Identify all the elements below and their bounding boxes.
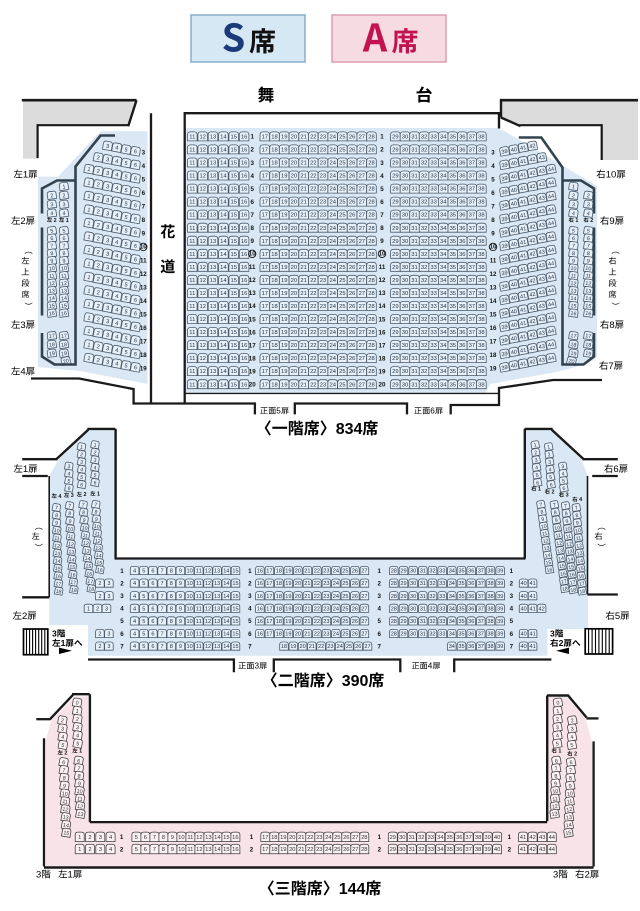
svg-text:36: 36 — [468, 606, 474, 612]
svg-text:20: 20 — [291, 135, 297, 141]
svg-text:7: 7 — [510, 643, 514, 650]
svg-text:11: 11 — [196, 632, 202, 638]
svg-text:5: 5 — [142, 619, 145, 625]
svg-text:27: 27 — [359, 252, 365, 258]
svg-text:5: 5 — [510, 618, 514, 625]
svg-text:22: 22 — [307, 847, 313, 853]
svg-text:6: 6 — [613, 464, 618, 475]
svg-text:44: 44 — [548, 247, 555, 254]
svg-text:1: 1 — [248, 568, 252, 575]
svg-text:21: 21 — [300, 174, 306, 180]
svg-text:21: 21 — [304, 606, 310, 612]
svg-text:40: 40 — [520, 594, 526, 600]
svg-text:36: 36 — [459, 213, 465, 219]
svg-text:18: 18 — [88, 586, 95, 593]
svg-text:17: 17 — [262, 213, 268, 219]
svg-text:8: 8 — [170, 594, 173, 600]
svg-text:4: 4 — [142, 163, 146, 170]
svg-text:33: 33 — [430, 343, 436, 349]
svg-text:13: 13 — [210, 226, 216, 232]
svg-text:25: 25 — [342, 594, 348, 600]
svg-text:30: 30 — [402, 187, 408, 193]
svg-text:7: 7 — [380, 212, 384, 219]
svg-text:18: 18 — [140, 352, 147, 359]
svg-text:15: 15 — [230, 317, 236, 323]
svg-text:15: 15 — [232, 581, 238, 587]
svg-text:24: 24 — [329, 356, 336, 362]
svg-text:36: 36 — [456, 835, 462, 841]
svg-text:36: 36 — [459, 239, 465, 245]
svg-text:19: 19 — [281, 369, 287, 375]
svg-text:27: 27 — [359, 304, 365, 310]
svg-text:39: 39 — [497, 606, 503, 612]
svg-text:25: 25 — [342, 581, 348, 587]
svg-text:19: 19 — [281, 265, 287, 271]
svg-text:2: 2 — [248, 580, 252, 587]
svg-text:11: 11 — [189, 135, 195, 141]
svg-text:10: 10 — [186, 606, 192, 612]
svg-text:16: 16 — [241, 369, 247, 375]
svg-text:7: 7 — [377, 643, 381, 650]
svg-text:14: 14 — [379, 303, 386, 310]
svg-text:7: 7 — [161, 619, 164, 625]
svg-text:37: 37 — [469, 343, 475, 349]
svg-text:41: 41 — [520, 348, 527, 355]
svg-text:13: 13 — [210, 174, 216, 180]
svg-text:15: 15 — [232, 606, 238, 612]
svg-text:27: 27 — [359, 187, 365, 193]
svg-text:12: 12 — [199, 174, 205, 180]
svg-text:36: 36 — [459, 356, 465, 362]
svg-text:13: 13 — [490, 285, 497, 292]
svg-text:23: 23 — [316, 847, 322, 853]
svg-text:16: 16 — [257, 594, 263, 600]
svg-text:42: 42 — [529, 359, 536, 366]
svg-text:6: 6 — [377, 631, 381, 638]
svg-text:27: 27 — [359, 343, 365, 349]
svg-text:17: 17 — [262, 304, 268, 310]
svg-text:37: 37 — [465, 847, 471, 853]
svg-text:28: 28 — [368, 187, 374, 193]
svg-text:26: 26 — [343, 835, 349, 841]
svg-text:19: 19 — [281, 304, 287, 310]
svg-text:15: 15 — [249, 316, 256, 323]
svg-text:7: 7 — [161, 581, 164, 587]
svg-text:37: 37 — [478, 644, 484, 650]
svg-text:13: 13 — [210, 265, 216, 271]
svg-text:40: 40 — [510, 214, 517, 221]
svg-text:14: 14 — [220, 161, 227, 167]
svg-text:15: 15 — [230, 226, 236, 232]
svg-text:42: 42 — [529, 278, 536, 285]
svg-text:37: 37 — [469, 304, 475, 310]
svg-text:43: 43 — [538, 195, 545, 202]
svg-text:39: 39 — [501, 311, 508, 318]
svg-text:30: 30 — [402, 343, 408, 349]
svg-text:6: 6 — [144, 847, 147, 853]
svg-text:21: 21 — [304, 569, 310, 575]
svg-text:1: 1 — [23, 170, 28, 181]
svg-text:31: 31 — [420, 606, 426, 612]
svg-text:18: 18 — [271, 291, 277, 297]
svg-text:39: 39 — [501, 297, 508, 304]
svg-text:16: 16 — [241, 200, 247, 206]
svg-text:31: 31 — [411, 265, 417, 271]
svg-text:1: 1 — [510, 568, 514, 575]
svg-text:13: 13 — [210, 135, 216, 141]
svg-text:3: 3 — [99, 835, 102, 841]
svg-text:16: 16 — [241, 239, 247, 245]
svg-text:3: 3 — [550, 629, 555, 639]
svg-text:18: 18 — [271, 252, 277, 258]
svg-text:31: 31 — [411, 161, 417, 167]
svg-text:39: 39 — [484, 835, 490, 841]
svg-text:18: 18 — [271, 356, 277, 362]
svg-text:33: 33 — [430, 317, 436, 323]
svg-text:2: 2 — [573, 752, 578, 758]
svg-text:32: 32 — [421, 161, 427, 167]
svg-text:38: 38 — [487, 569, 493, 575]
svg-text:32: 32 — [421, 369, 427, 375]
svg-text:35: 35 — [450, 226, 456, 232]
svg-text:12: 12 — [205, 606, 211, 612]
svg-text:18: 18 — [271, 135, 277, 141]
svg-text:19: 19 — [281, 252, 287, 258]
svg-text:24: 24 — [325, 835, 332, 841]
svg-text:13: 13 — [214, 581, 220, 587]
svg-text:12: 12 — [490, 271, 497, 278]
svg-text:9: 9 — [171, 835, 174, 841]
svg-text:43: 43 — [538, 182, 545, 189]
svg-text:35: 35 — [458, 581, 464, 587]
svg-text:7: 7 — [142, 204, 146, 211]
svg-text:3: 3 — [105, 606, 108, 612]
svg-text:19: 19 — [379, 368, 386, 375]
svg-text:30: 30 — [402, 135, 408, 141]
svg-text:30: 30 — [402, 239, 408, 245]
svg-text:21: 21 — [300, 330, 306, 336]
svg-text:31: 31 — [411, 382, 417, 388]
svg-text:43: 43 — [538, 222, 545, 229]
svg-text:30: 30 — [402, 278, 408, 284]
svg-text:32: 32 — [421, 330, 427, 336]
svg-text:34: 34 — [440, 239, 447, 245]
svg-text:3: 3 — [255, 662, 260, 671]
svg-text:16: 16 — [379, 329, 386, 336]
svg-text:35: 35 — [458, 619, 464, 625]
svg-text:29: 29 — [392, 161, 398, 167]
svg-text:40: 40 — [510, 174, 517, 181]
svg-text:12: 12 — [205, 594, 211, 600]
svg-text:22: 22 — [310, 213, 316, 219]
svg-text:40: 40 — [510, 336, 517, 343]
svg-text:24: 24 — [329, 291, 336, 297]
svg-text:43: 43 — [538, 249, 545, 256]
svg-text:23: 23 — [323, 632, 329, 638]
svg-text:23: 23 — [320, 135, 326, 141]
svg-text:16: 16 — [241, 148, 247, 154]
svg-text:43: 43 — [539, 835, 545, 841]
svg-text:20: 20 — [291, 148, 297, 154]
svg-text:16: 16 — [257, 632, 263, 638]
svg-text:18: 18 — [585, 342, 592, 349]
svg-text:27: 27 — [359, 226, 365, 232]
svg-text:39: 39 — [501, 270, 508, 277]
svg-text:31: 31 — [411, 304, 417, 310]
svg-text:15: 15 — [230, 304, 236, 310]
svg-text:36: 36 — [459, 330, 465, 336]
svg-text:22: 22 — [314, 594, 320, 600]
svg-text:10: 10 — [490, 244, 497, 251]
svg-text:36: 36 — [459, 369, 465, 375]
svg-text:20: 20 — [291, 317, 297, 323]
svg-text:39: 39 — [501, 243, 508, 250]
svg-text:34: 34 — [440, 174, 447, 180]
svg-text:3: 3 — [107, 594, 110, 600]
svg-text:17: 17 — [262, 317, 268, 323]
svg-text:23: 23 — [320, 356, 326, 362]
svg-text:20: 20 — [291, 174, 297, 180]
svg-text:21: 21 — [300, 317, 306, 323]
svg-text:29: 29 — [390, 847, 396, 853]
svg-text:31: 31 — [411, 135, 417, 141]
svg-text:32: 32 — [429, 632, 435, 638]
svg-text:23: 23 — [320, 252, 326, 258]
svg-text:18: 18 — [271, 226, 277, 232]
svg-text:30: 30 — [410, 594, 416, 600]
svg-text:10: 10 — [379, 251, 386, 258]
svg-text:20: 20 — [291, 382, 297, 388]
svg-text:8: 8 — [170, 581, 173, 587]
svg-text:44: 44 — [548, 234, 555, 241]
svg-text:10: 10 — [186, 644, 192, 650]
svg-text:32: 32 — [418, 835, 424, 841]
svg-text:18: 18 — [271, 200, 277, 206]
svg-text:39: 39 — [484, 847, 490, 853]
svg-text:14: 14 — [220, 226, 227, 232]
svg-text:20: 20 — [291, 187, 297, 193]
svg-text:17: 17 — [262, 382, 268, 388]
svg-text:5: 5 — [142, 581, 145, 587]
svg-text:34: 34 — [440, 135, 447, 141]
svg-text:30: 30 — [402, 226, 408, 232]
svg-text:39: 39 — [497, 619, 503, 625]
svg-text:23: 23 — [320, 239, 326, 245]
svg-text:30: 30 — [402, 161, 408, 167]
svg-text:2: 2 — [378, 846, 382, 853]
svg-text:25: 25 — [339, 161, 345, 167]
svg-text:30: 30 — [402, 213, 408, 219]
svg-text:21: 21 — [300, 369, 306, 375]
svg-text:5: 5 — [135, 835, 138, 841]
svg-text:37: 37 — [478, 606, 484, 612]
svg-text:7: 7 — [153, 835, 156, 841]
svg-text:31: 31 — [411, 291, 417, 297]
svg-text:26: 26 — [349, 148, 355, 154]
svg-text:14: 14 — [223, 619, 229, 625]
svg-text:41: 41 — [520, 199, 527, 206]
svg-text:5: 5 — [276, 407, 281, 416]
svg-text:17: 17 — [262, 278, 268, 284]
svg-text:19: 19 — [280, 847, 286, 853]
svg-text:32: 32 — [421, 213, 427, 219]
svg-text:3: 3 — [250, 160, 254, 167]
svg-text:41: 41 — [520, 226, 527, 233]
svg-text:42: 42 — [529, 251, 536, 258]
svg-text:7: 7 — [153, 847, 156, 853]
svg-text:14: 14 — [220, 291, 227, 297]
svg-text:29: 29 — [392, 356, 398, 362]
svg-text:12: 12 — [196, 847, 202, 853]
svg-text:18: 18 — [271, 317, 277, 323]
svg-text:28: 28 — [368, 278, 374, 284]
svg-text:32: 32 — [421, 148, 427, 154]
svg-text:25: 25 — [342, 619, 348, 625]
svg-text:33: 33 — [430, 187, 436, 193]
svg-text:30: 30 — [402, 200, 408, 206]
svg-text:5: 5 — [380, 186, 384, 193]
svg-text:27: 27 — [359, 200, 365, 206]
svg-text:15: 15 — [230, 174, 236, 180]
svg-text:33: 33 — [427, 847, 433, 853]
svg-text:30: 30 — [402, 148, 408, 154]
svg-text:23: 23 — [323, 606, 329, 612]
svg-text:24: 24 — [329, 382, 336, 388]
svg-text:36: 36 — [459, 252, 465, 258]
svg-text:34: 34 — [437, 835, 444, 841]
svg-text:16: 16 — [257, 606, 263, 612]
svg-text:19: 19 — [281, 330, 287, 336]
svg-text:38: 38 — [475, 835, 481, 841]
svg-text:14: 14 — [220, 330, 227, 336]
svg-text:33: 33 — [430, 304, 436, 310]
svg-text:13: 13 — [205, 847, 211, 853]
svg-text:29: 29 — [400, 606, 406, 612]
svg-text:25: 25 — [339, 291, 345, 297]
svg-text:37: 37 — [469, 213, 475, 219]
svg-text:11: 11 — [189, 265, 195, 271]
svg-text:11: 11 — [189, 148, 195, 154]
svg-text:6: 6 — [144, 835, 147, 841]
svg-text:33: 33 — [430, 213, 436, 219]
svg-text:4: 4 — [57, 494, 62, 500]
svg-text:4: 4 — [133, 569, 136, 575]
svg-text:3: 3 — [510, 593, 514, 600]
svg-text:44: 44 — [549, 835, 556, 841]
svg-text:1: 1 — [78, 835, 81, 841]
svg-text:22: 22 — [310, 265, 316, 271]
svg-text:15: 15 — [69, 564, 76, 571]
svg-text:20: 20 — [291, 226, 297, 232]
svg-text:3: 3 — [142, 150, 146, 157]
svg-text:19: 19 — [281, 213, 287, 219]
svg-text:23: 23 — [320, 187, 326, 193]
svg-text:24: 24 — [333, 632, 339, 638]
svg-text:22: 22 — [310, 317, 316, 323]
svg-text:39: 39 — [501, 162, 508, 169]
svg-text:14: 14 — [249, 303, 256, 310]
svg-text:38: 38 — [487, 581, 493, 587]
svg-text:33: 33 — [439, 594, 445, 600]
svg-text:28: 28 — [368, 304, 374, 310]
svg-text:25: 25 — [339, 226, 345, 232]
svg-text:23: 23 — [323, 581, 329, 587]
svg-text:29: 29 — [392, 291, 398, 297]
svg-text:16: 16 — [241, 252, 247, 258]
svg-text:27: 27 — [361, 581, 367, 587]
svg-text:28: 28 — [361, 847, 367, 853]
svg-text:31: 31 — [411, 317, 417, 323]
svg-text:40: 40 — [520, 606, 526, 612]
svg-text:16: 16 — [490, 325, 497, 332]
svg-text:43: 43 — [538, 357, 545, 364]
svg-text:16: 16 — [241, 317, 247, 323]
svg-text:33: 33 — [430, 174, 436, 180]
svg-text:5: 5 — [142, 594, 145, 600]
svg-text:41: 41 — [520, 847, 526, 853]
svg-text:10: 10 — [186, 632, 192, 638]
svg-text:36: 36 — [468, 619, 474, 625]
svg-text:44: 44 — [548, 315, 555, 322]
svg-text:25: 25 — [339, 356, 345, 362]
svg-text:38: 38 — [478, 148, 484, 154]
svg-text:5: 5 — [142, 632, 145, 638]
svg-text:16: 16 — [241, 174, 247, 180]
svg-text:16: 16 — [241, 226, 247, 232]
svg-text:17: 17 — [262, 835, 268, 841]
svg-text:43: 43 — [539, 847, 545, 853]
svg-text:33: 33 — [439, 632, 445, 638]
svg-text:27: 27 — [352, 835, 358, 841]
svg-text:41: 41 — [529, 644, 535, 650]
svg-text:25: 25 — [339, 369, 345, 375]
svg-text:24: 24 — [333, 606, 339, 612]
svg-text:27: 27 — [359, 148, 365, 154]
svg-text:40: 40 — [510, 255, 517, 262]
svg-text:1: 1 — [537, 486, 542, 492]
svg-text:41: 41 — [520, 307, 527, 314]
svg-text:2: 2 — [250, 147, 254, 154]
svg-text:12: 12 — [199, 200, 205, 206]
svg-text:15: 15 — [63, 830, 70, 837]
svg-text:26: 26 — [349, 187, 355, 193]
svg-text:40: 40 — [510, 241, 517, 248]
svg-text:39: 39 — [501, 338, 508, 345]
svg-text:11: 11 — [490, 258, 497, 265]
svg-text:3: 3 — [107, 644, 110, 650]
svg-text:39: 39 — [497, 632, 503, 638]
svg-text:39: 39 — [501, 257, 508, 264]
svg-text:33: 33 — [439, 569, 445, 575]
svg-text:17: 17 — [262, 148, 268, 154]
svg-text:19: 19 — [49, 351, 56, 358]
svg-text:36: 36 — [459, 174, 465, 180]
svg-text:21: 21 — [298, 847, 304, 853]
svg-text:39: 39 — [497, 644, 503, 650]
svg-text:21: 21 — [300, 213, 306, 219]
svg-text:18: 18 — [271, 304, 277, 310]
svg-text:31: 31 — [411, 148, 417, 154]
svg-text:30: 30 — [410, 619, 416, 625]
svg-text:44: 44 — [548, 342, 555, 349]
svg-text:27: 27 — [359, 213, 365, 219]
svg-text:18: 18 — [271, 369, 277, 375]
svg-text:38: 38 — [478, 213, 484, 219]
svg-text:11: 11 — [196, 644, 202, 650]
svg-text:29: 29 — [392, 278, 398, 284]
svg-text:9: 9 — [250, 238, 254, 245]
svg-text:17: 17 — [262, 847, 268, 853]
